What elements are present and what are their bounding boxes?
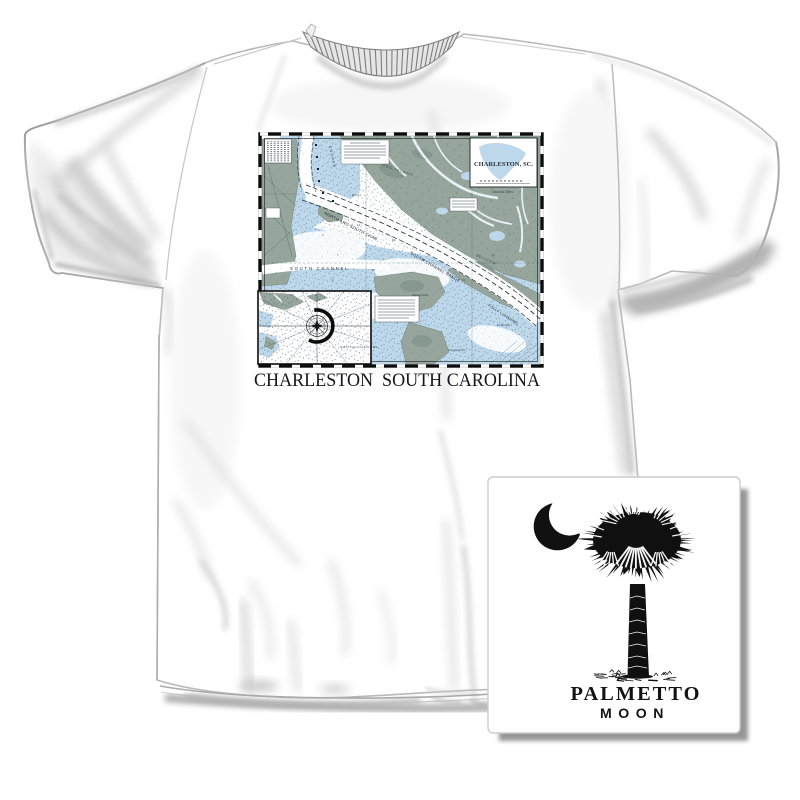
svg-text:Cummings Pt: Cummings Pt bbox=[448, 348, 465, 352]
svg-text:CHARLESTON SOUTH CAROLINA: CHARLESTON SOUTH CAROLINA bbox=[254, 370, 540, 391]
svg-text:SOUTH CHANNEL: SOUTH CHANNEL bbox=[290, 266, 349, 271]
svg-text:SOUTH CHANNEL: SOUTH CHANNEL bbox=[340, 345, 379, 349]
svg-text:Nautical Miles: Nautical Miles bbox=[492, 190, 513, 194]
svg-text:Drum I: Drum I bbox=[352, 193, 361, 197]
svg-text:CHARLESTON, SC.: CHARLESTON, SC. bbox=[474, 161, 533, 168]
svg-text:MOON: MOON bbox=[600, 705, 670, 721]
svg-text:Ft Sumter: Ft Sumter bbox=[497, 323, 510, 327]
svg-text:PALMETTO: PALMETTO bbox=[571, 683, 702, 705]
